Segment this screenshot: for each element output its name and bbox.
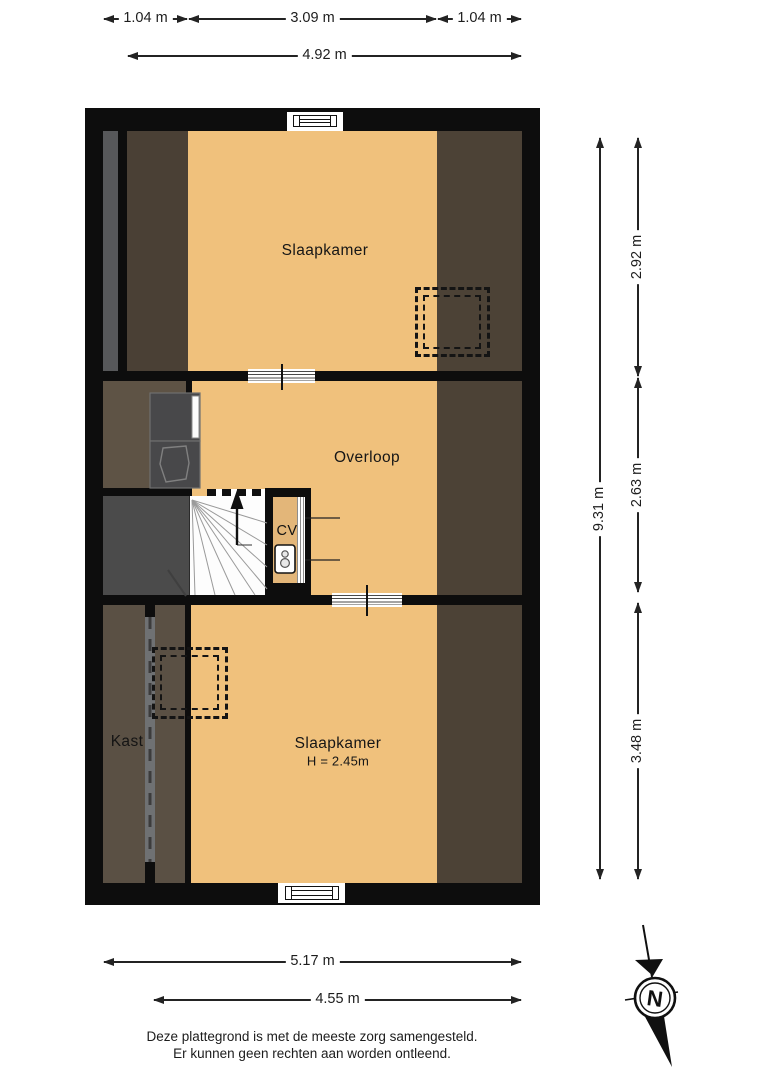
dim-right-seg2: 2.63 m — [632, 377, 644, 593]
wall-divider-mid — [186, 381, 192, 496]
dim-right-total: 9.31 m — [594, 137, 606, 880]
eaves-area-mid-left — [103, 381, 186, 488]
floorplan-outer-walls: Slaapkamer Overloop CV Kast Slaapkamer H… — [85, 108, 540, 905]
landing-label: Overloop — [334, 449, 400, 467]
dim-right-seg2-label: 2.63 m — [630, 458, 646, 512]
window-north-jamb-left — [293, 115, 300, 127]
door-opening-north-tick — [281, 364, 283, 390]
window-north — [293, 115, 337, 127]
window-south-jamb-left — [285, 886, 292, 900]
roof-strip-gray — [103, 131, 118, 371]
eaves-area-mid-right — [437, 381, 522, 595]
window-north-jamb-right — [330, 115, 337, 127]
compass-icon: N — [615, 920, 695, 1075]
wall-band-mid — [103, 488, 189, 496]
dim-bottom-inner: 4.55 m — [153, 994, 522, 1006]
dim-bottom-inner-label: 4.55 m — [310, 992, 364, 1008]
cv-closet-door — [297, 497, 305, 583]
dim-top-left-label: 1.04 m — [118, 11, 172, 27]
dim-bottom-total-label: 5.17 m — [285, 954, 339, 970]
window-south-pane — [292, 890, 332, 895]
staircase — [189, 496, 268, 595]
stair-cut-line — [207, 489, 267, 496]
dim-right-seg1: 2.92 m — [632, 137, 644, 377]
dim-top-center: 3.09 m — [188, 13, 437, 25]
dim-top-left: 1.04 m — [103, 13, 188, 25]
dim-top-total-label: 4.92 m — [297, 48, 351, 64]
door-opening-south-tick — [366, 585, 368, 616]
bedroom-south-height-label: H = 2.45m — [307, 754, 369, 769]
partition-stub-bottom — [145, 862, 155, 883]
dim-top-total: 4.92 m — [127, 50, 522, 62]
disclaimer-line-1: Deze plattegrond is met de meeste zorg s… — [92, 1029, 532, 1046]
dormer-dashed-south-inner — [160, 655, 219, 710]
disclaimer-line-2: Er kunnen geen rechten aan worden ontlee… — [92, 1046, 532, 1063]
cv-label: CV — [277, 523, 298, 539]
dim-bottom-total: 5.17 m — [103, 956, 522, 968]
dim-right-seg3-label: 3.48 m — [630, 714, 646, 768]
window-south — [285, 886, 339, 900]
cv-closet-floor — [273, 497, 297, 583]
dim-right-seg3: 3.48 m — [632, 602, 644, 880]
eaves-area-south-right — [437, 605, 522, 883]
window-north-pane — [300, 119, 330, 123]
dormer-dashed-north-inner — [423, 295, 481, 349]
bedroom-north-label: Slaapkamer — [282, 242, 369, 260]
dim-top-right: 1.04 m — [437, 13, 522, 25]
void-area-gray — [103, 496, 189, 595]
dim-top-right-label: 1.04 m — [452, 11, 506, 27]
dim-right-seg1-label: 2.92 m — [630, 230, 646, 284]
closet-label: Kast — [111, 733, 144, 751]
floorplan-page: Slaapkamer Overloop CV Kast Slaapkamer H… — [0, 0, 768, 1086]
dim-right-total-label: 9.31 m — [592, 481, 608, 535]
bedroom-south-label: Slaapkamer — [295, 735, 382, 753]
eaves-area-north-left — [127, 131, 188, 371]
dim-top-center-label: 3.09 m — [285, 11, 339, 27]
window-south-jamb-right — [332, 886, 339, 900]
